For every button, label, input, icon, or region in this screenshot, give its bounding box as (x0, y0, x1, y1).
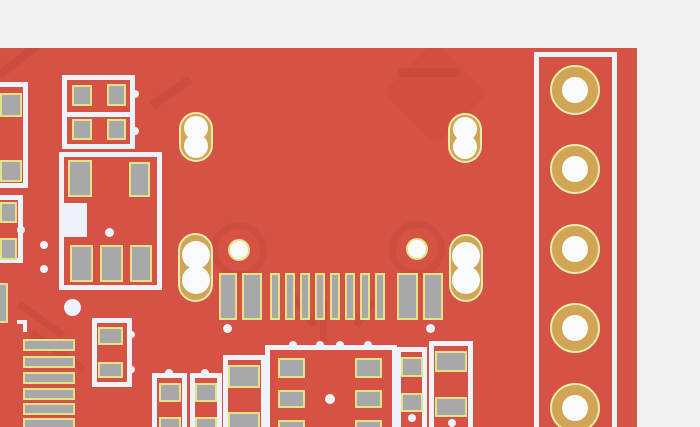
pin1-dot (201, 369, 209, 377)
footprint-passive-b2[interactable] (190, 373, 222, 427)
pin-marker-dot (364, 341, 372, 349)
connector-pad (270, 273, 280, 320)
connector-pad (375, 273, 385, 320)
pcb-board[interactable] (0, 48, 637, 427)
footprint-edge-mid[interactable] (0, 195, 23, 263)
smd-pad (107, 84, 126, 106)
silkscreen-dot (223, 324, 232, 333)
pin-header-silk-right (612, 52, 617, 427)
drill-hole (453, 135, 477, 159)
footprint-passive-b5[interactable] (429, 341, 473, 427)
smd-pad (98, 362, 123, 378)
drill-hole (182, 266, 210, 294)
pin1-dot (165, 369, 173, 377)
connector-pad (345, 273, 355, 320)
smd-pad (228, 365, 260, 388)
footprint-edge-top[interactable] (0, 82, 28, 188)
smd-pad (72, 85, 92, 106)
pin-marker-dot (289, 341, 297, 349)
drill-hole (562, 236, 588, 262)
through-hole[interactable] (550, 383, 600, 427)
plated-slot[interactable] (178, 233, 213, 302)
smd-pad (100, 245, 123, 282)
pin1-dot (408, 414, 416, 422)
silkscreen-fill (59, 203, 87, 237)
copper-trace (0, 48, 40, 79)
through-hole[interactable] (550, 303, 600, 353)
smd-pad (0, 160, 22, 182)
silkscreen-dot (426, 324, 435, 333)
connector-bar-pad (23, 418, 75, 427)
locating-hole (406, 238, 428, 260)
footprint-divider (62, 112, 135, 117)
footprint-ic-bottom[interactable] (265, 345, 397, 427)
connector-bar-pad (23, 372, 75, 384)
copper-trace (398, 68, 460, 77)
silkscreen-corner-bracket (17, 320, 27, 332)
connector-pad (397, 273, 418, 320)
drill-hole (562, 315, 588, 341)
smd-pad (68, 160, 92, 197)
pin-header-silk-top (534, 52, 617, 57)
smd-pad (0, 93, 22, 117)
drill-hole (562, 77, 588, 103)
smd-pad (129, 162, 150, 197)
connector-pad (360, 273, 370, 320)
smd-pad (159, 417, 181, 427)
plated-slot[interactable] (448, 113, 482, 163)
smd-pad (278, 358, 305, 378)
through-hole[interactable] (550, 224, 600, 274)
smd-pad (401, 357, 423, 377)
copper-trace (150, 76, 193, 110)
pin1-dot (448, 419, 456, 427)
smd-pad (98, 327, 123, 345)
footprint-ic-left[interactable] (59, 152, 162, 290)
footprint-passive-pair[interactable] (62, 75, 135, 149)
through-hole[interactable] (550, 65, 600, 115)
connector-bar-pad (23, 339, 75, 351)
pin1-dot (131, 90, 139, 98)
smd-pad (195, 383, 217, 402)
smd-pad (355, 358, 382, 378)
pin-marker-dot (336, 341, 344, 349)
connector-pad (300, 273, 310, 320)
connector-pad (315, 273, 325, 320)
pin1-dot (131, 127, 139, 135)
plated-slot[interactable] (179, 112, 213, 162)
footprint-passive-b3[interactable] (223, 355, 266, 427)
smd-pad (435, 397, 467, 417)
footprint-passive-b1[interactable] (152, 373, 187, 427)
smd-pad-edge (0, 283, 8, 323)
center-dot (325, 394, 335, 404)
smd-pad (195, 417, 217, 427)
smd-pad (355, 390, 382, 408)
connector-pad (242, 273, 262, 320)
via-dot (40, 265, 48, 273)
through-hole[interactable] (550, 144, 600, 194)
connector-bar-pad (23, 356, 75, 368)
via-dot (40, 241, 48, 249)
connector-pad (330, 273, 340, 320)
connector-pad (423, 273, 443, 320)
drill-hole (184, 134, 208, 158)
connector-bar-pad (23, 403, 75, 415)
pin1-dot (128, 331, 135, 338)
pin-marker-dot (316, 341, 324, 349)
smd-pad (0, 238, 17, 260)
connector-pad (285, 273, 295, 320)
drill-hole (452, 266, 480, 294)
smd-pad (72, 119, 92, 140)
smd-pad (435, 351, 467, 372)
connector-pad (219, 273, 237, 320)
connector-bar-pad (23, 388, 75, 400)
pin1-dot (128, 366, 135, 373)
drill-hole (562, 395, 588, 421)
pcb-viewer-canvas[interactable] (0, 0, 700, 427)
smd-pad (355, 420, 382, 427)
footprint-vertical-passive[interactable] (92, 318, 132, 387)
smd-pad (228, 412, 260, 427)
smd-pad (107, 119, 126, 140)
pin1-dot (105, 228, 114, 237)
footprint-passive-b4[interactable] (396, 347, 427, 427)
smd-pad (401, 393, 423, 412)
plated-slot[interactable] (449, 234, 483, 302)
smd-pad (0, 202, 17, 223)
pin-header-silk-left (534, 52, 539, 427)
drill-hole (182, 241, 210, 269)
smd-pad (130, 245, 152, 282)
via-dot (64, 299, 81, 316)
drill-hole (562, 156, 588, 182)
smd-pad (159, 383, 181, 402)
smd-pad (278, 420, 305, 427)
smd-pad (278, 390, 305, 408)
smd-pad (70, 245, 93, 282)
locating-hole (228, 239, 250, 261)
pin1-dot (17, 226, 25, 234)
